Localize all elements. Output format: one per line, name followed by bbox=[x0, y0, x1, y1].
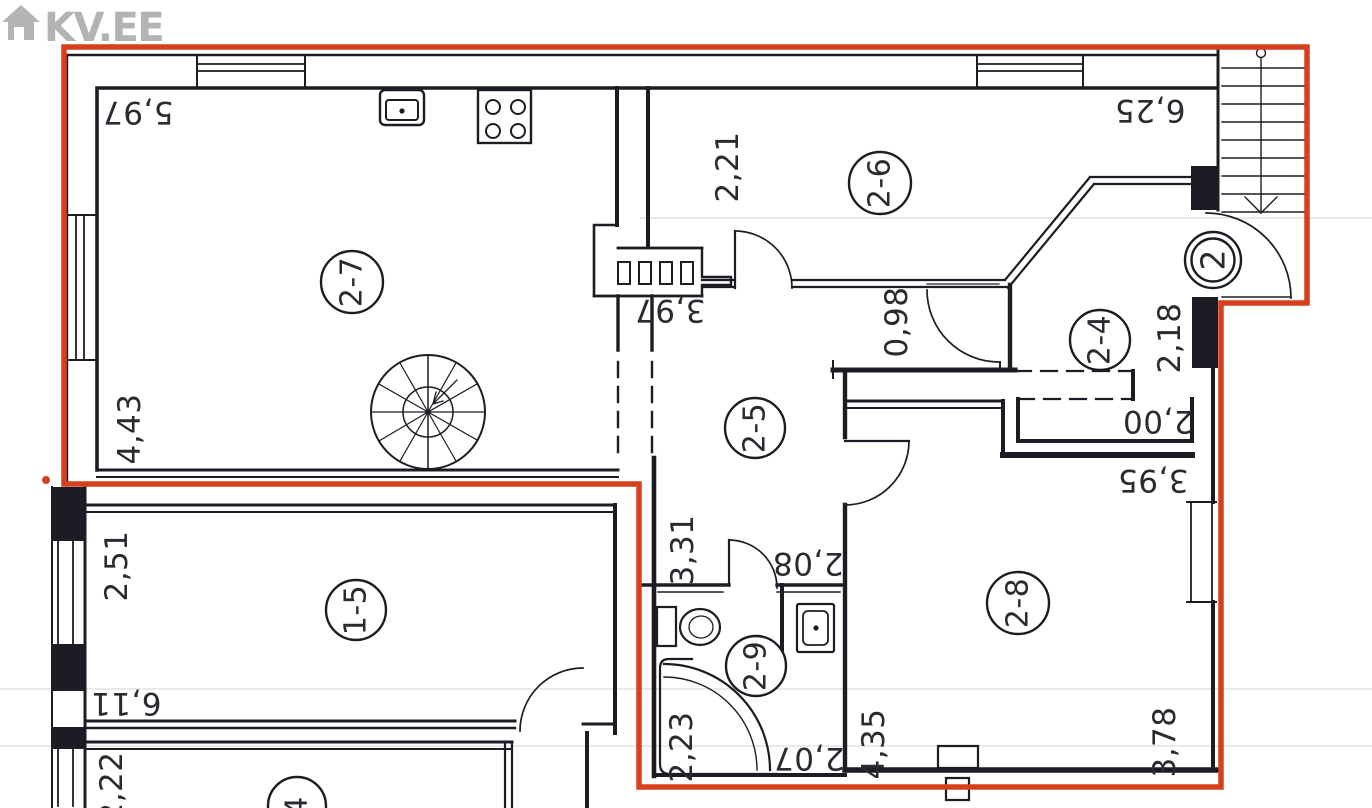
door-arc bbox=[520, 668, 583, 731]
walls bbox=[52, 47, 1305, 808]
entrance-door-jamb bbox=[1191, 166, 1217, 210]
dimension-label: 0,98 bbox=[879, 286, 915, 357]
kitchen-sink bbox=[380, 90, 424, 125]
dimension-label: 2,23 bbox=[664, 711, 700, 782]
window bbox=[977, 55, 1083, 88]
entrance-number-label: 2 bbox=[1194, 250, 1233, 271]
door-arc bbox=[927, 284, 999, 362]
spiral-staircase bbox=[371, 355, 485, 470]
floor-plan-page: 2-72-62-52-42-82-91-5425,972,216,254,433… bbox=[0, 0, 1372, 808]
window bbox=[1187, 502, 1216, 602]
dimension-label: 2,51 bbox=[99, 530, 135, 601]
closet-dashed-front bbox=[1015, 371, 1133, 399]
room-number-label: 2-7 bbox=[335, 257, 370, 308]
room-number-label: 2-5 bbox=[738, 403, 773, 454]
room-number-label: 2-9 bbox=[739, 641, 774, 692]
room-number-label: 1-5 bbox=[339, 585, 374, 636]
dimension-label: 5,97 bbox=[102, 94, 173, 130]
logo-text: KV.EE bbox=[44, 5, 163, 51]
stove bbox=[478, 90, 531, 143]
room-number-label: 2-6 bbox=[863, 158, 898, 209]
boundary-dot bbox=[42, 476, 50, 484]
room-number-label: 2-4 bbox=[1083, 315, 1118, 366]
window bbox=[52, 748, 85, 806]
staircase bbox=[1218, 47, 1305, 213]
window bbox=[197, 55, 305, 88]
window bbox=[67, 215, 97, 360]
dimension-label: 3,95 bbox=[1117, 462, 1188, 498]
chimney-flues bbox=[618, 262, 693, 284]
wall-pier bbox=[52, 487, 85, 540]
washbasin bbox=[797, 604, 834, 652]
dimension-label: 4,35 bbox=[856, 708, 892, 779]
dimension-label: 6,11 bbox=[90, 685, 161, 721]
dimension-label: 3,78 bbox=[1147, 706, 1183, 777]
door-arc bbox=[729, 540, 777, 588]
dimension-label: 2,21 bbox=[710, 131, 746, 202]
room-number-label: 2-8 bbox=[1001, 578, 1036, 629]
room-number-label: 4 bbox=[280, 796, 315, 808]
dashed-opening bbox=[618, 362, 652, 458]
dimension-label: 4,43 bbox=[112, 393, 148, 464]
labels: 2-72-62-52-42-82-91-5425,972,216,254,433… bbox=[90, 92, 1241, 808]
floor-plan-drawing: 2-72-62-52-42-82-91-5425,972,216,254,433… bbox=[0, 0, 1372, 808]
dimension-label: 2,08 bbox=[772, 545, 843, 581]
kv-logo: KV.EE bbox=[2, 5, 163, 51]
dimension-label: 3,31 bbox=[665, 514, 701, 585]
door-arc bbox=[845, 441, 909, 505]
chimney-stub bbox=[938, 746, 978, 768]
wall-pier bbox=[52, 727, 85, 748]
dimension-label: 3,97 bbox=[634, 292, 705, 328]
wall-pier bbox=[52, 645, 85, 691]
dimension-label: 2,18 bbox=[1152, 302, 1188, 373]
window bbox=[52, 540, 85, 645]
dimension-label: 2,07 bbox=[773, 740, 844, 776]
dimension-label: 2,22 bbox=[94, 751, 130, 808]
chimney-block bbox=[594, 248, 731, 296]
door-arc bbox=[735, 231, 792, 288]
dimension-label: 2,00 bbox=[1122, 403, 1193, 439]
dimension-label: 6,25 bbox=[1114, 92, 1185, 128]
apartment-boundary bbox=[42, 47, 1307, 787]
house-icon bbox=[2, 5, 40, 40]
toilet bbox=[657, 607, 720, 646]
